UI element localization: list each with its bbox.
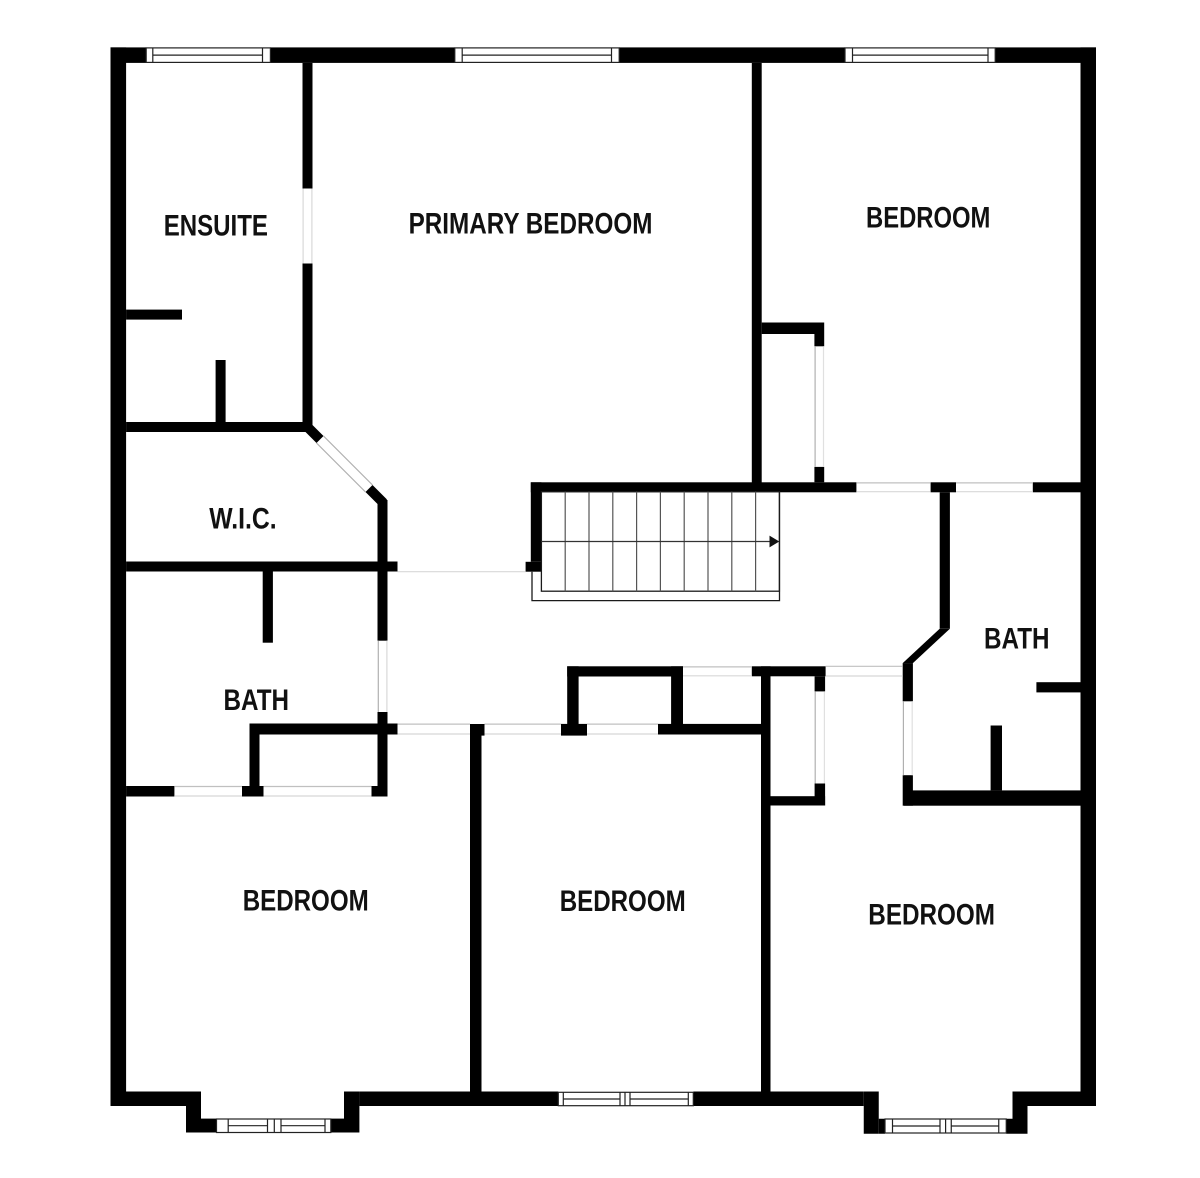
svg-text:BEDROOM: BEDROOM (560, 885, 686, 918)
svg-text:BATH: BATH (224, 684, 290, 717)
svg-text:ENSUITE: ENSUITE (164, 210, 268, 243)
svg-text:W.I.C.: W.I.C. (209, 503, 276, 536)
svg-text:BEDROOM: BEDROOM (868, 898, 995, 931)
svg-text:BATH: BATH (984, 623, 1050, 656)
svg-text:BEDROOM: BEDROOM (866, 202, 990, 235)
svg-text:PRIMARY BEDROOM: PRIMARY BEDROOM (409, 208, 653, 241)
svg-text:BEDROOM: BEDROOM (243, 884, 369, 917)
